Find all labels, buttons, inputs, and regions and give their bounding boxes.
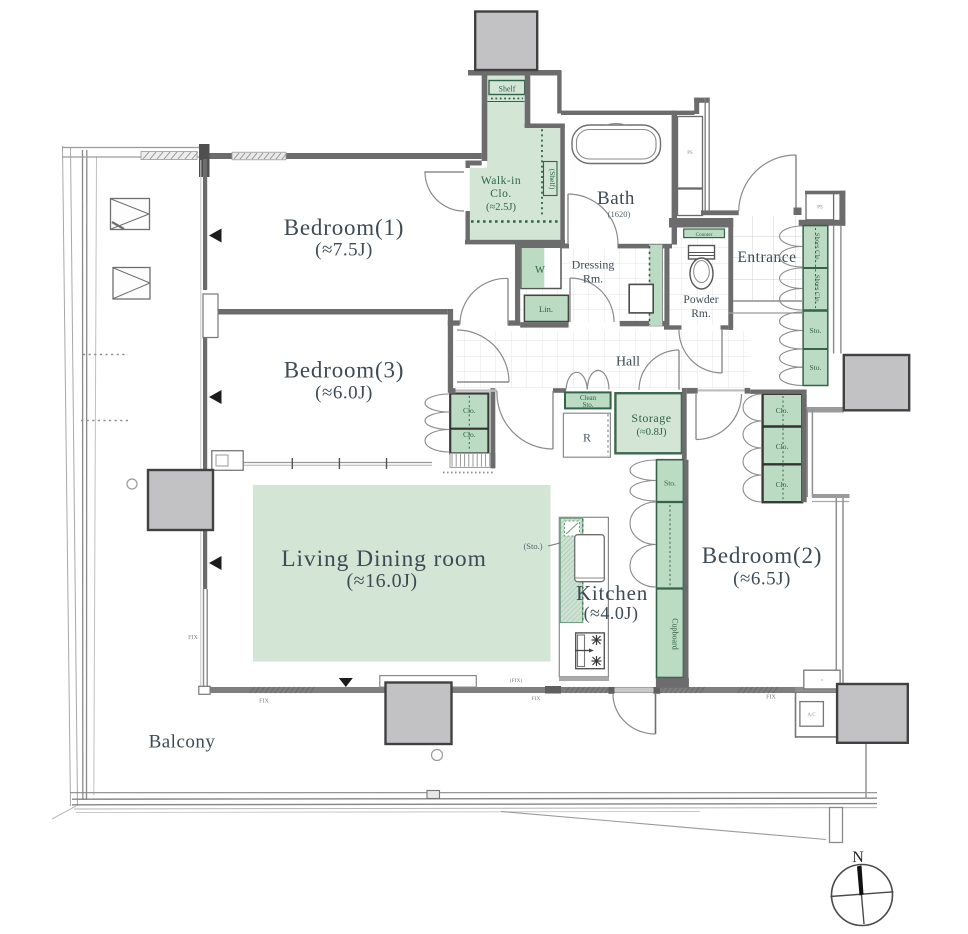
svg-text:Balcony: Balcony xyxy=(149,732,216,753)
svg-text:N: N xyxy=(852,849,864,866)
svg-text:Storage: Storage xyxy=(631,411,671,425)
svg-text:Shoes Clo.: Shoes Clo. xyxy=(814,233,821,262)
svg-text:FIX: FIX xyxy=(532,696,541,702)
svg-text:Counter: Counter xyxy=(696,232,713,238)
svg-text:(Shelf): (Shelf) xyxy=(548,169,557,190)
svg-text:Sto.: Sto. xyxy=(582,401,593,409)
svg-text:Rm.: Rm. xyxy=(583,272,603,286)
svg-text:Bath: Bath xyxy=(597,188,635,209)
svg-text:W: W xyxy=(535,265,545,276)
svg-text:Sto.: Sto. xyxy=(664,479,676,488)
svg-text:Clo.: Clo. xyxy=(776,480,789,489)
svg-text:(≈7.5J): (≈7.5J) xyxy=(315,240,373,261)
svg-text:Living Dining room: Living Dining room xyxy=(281,546,487,572)
svg-text:Dressing: Dressing xyxy=(572,258,615,272)
svg-text:(≈16.0J): (≈16.0J) xyxy=(346,570,417,592)
svg-text:Entrance: Entrance xyxy=(737,249,796,266)
svg-text:PS: PS xyxy=(817,206,823,211)
svg-text:Bedroom(1): Bedroom(1) xyxy=(284,215,404,240)
svg-text:Sto.: Sto. xyxy=(810,363,822,372)
svg-text:FIX: FIX xyxy=(766,695,776,701)
svg-text:FIX: FIX xyxy=(188,635,198,641)
svg-text:Kitchen: Kitchen xyxy=(576,581,648,605)
svg-text:Hall: Hall xyxy=(616,355,640,370)
svg-text:Shoes Clo.: Shoes Clo. xyxy=(814,275,821,304)
svg-text:Rm.: Rm. xyxy=(691,308,711,320)
svg-text:Clo.: Clo. xyxy=(463,430,476,439)
svg-text:(≈6.5J): (≈6.5J) xyxy=(733,569,791,590)
svg-text:Clo.: Clo. xyxy=(776,442,789,451)
svg-text:○: ○ xyxy=(820,679,823,684)
svg-text:(1620): (1620) xyxy=(608,209,631,219)
svg-text:(≈4.0J): (≈4.0J) xyxy=(584,603,639,624)
svg-text:(FIX): (FIX) xyxy=(510,677,523,684)
svg-text:Cupboard: Cupboard xyxy=(671,618,680,650)
svg-text:Bedroom(3): Bedroom(3) xyxy=(284,358,404,383)
svg-text:Bedroom(2): Bedroom(2) xyxy=(702,543,822,568)
svg-text:Powder: Powder xyxy=(683,294,718,306)
svg-text:Sto.: Sto. xyxy=(810,326,822,335)
svg-text:(≈6.0J): (≈6.0J) xyxy=(315,383,373,404)
svg-text:A/C: A/C xyxy=(807,713,816,718)
svg-text:(≈2.5J): (≈2.5J) xyxy=(486,202,516,213)
svg-text:Shelf: Shelf xyxy=(499,85,516,94)
svg-text:FIX: FIX xyxy=(259,699,269,705)
svg-text:Clo.: Clo. xyxy=(463,406,476,415)
svg-text:(Sto.): (Sto.) xyxy=(523,541,542,551)
svg-text:Walk-in: Walk-in xyxy=(481,175,521,187)
svg-text:Clo.: Clo. xyxy=(490,188,512,200)
svg-text:(≈0.8J): (≈0.8J) xyxy=(637,427,667,438)
svg-text:Lin.: Lin. xyxy=(539,304,553,314)
svg-text:Clo.: Clo. xyxy=(776,406,789,415)
svg-text:PS: PS xyxy=(687,151,693,156)
svg-text:R: R xyxy=(583,431,591,445)
